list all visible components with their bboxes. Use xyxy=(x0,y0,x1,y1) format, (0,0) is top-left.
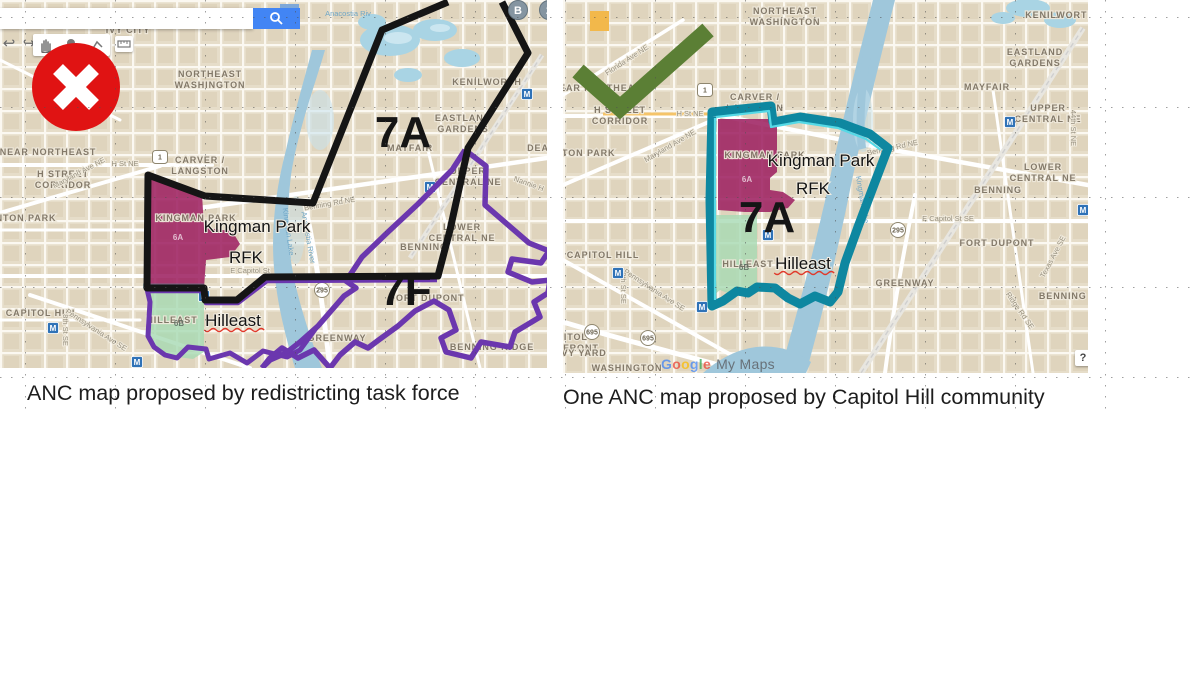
caption-community-map: One ANC map proposed by Capitol Hill com… xyxy=(563,385,1045,410)
search-input[interactable] xyxy=(0,8,253,29)
svg-text:2: 2 xyxy=(546,5,547,17)
route-shield: 1 xyxy=(153,151,168,164)
map-area-label: STANTON PARK xyxy=(563,148,615,158)
map-area-label: HILLEAST xyxy=(146,315,197,325)
svg-text:M: M xyxy=(1007,118,1014,127)
route-shield: 1 xyxy=(698,84,713,97)
community-map[interactable]: NORTHEASTWASHINGTONKENILWORTHEASTLANDGAR… xyxy=(563,0,1088,373)
street-label: 8th St SE xyxy=(61,314,70,346)
svg-text:M: M xyxy=(524,90,531,99)
svg-text:295: 295 xyxy=(892,228,904,235)
anc-badge: 6B xyxy=(739,263,749,272)
hand-icon[interactable] xyxy=(39,37,53,53)
annotation-label: Kingman Park xyxy=(768,151,875,170)
svg-text:M: M xyxy=(50,324,57,333)
annotation-label: Hilleast xyxy=(775,254,831,273)
map-area-label: NORTHEASTWASHINGTON xyxy=(750,6,821,27)
google-my-maps-watermark: GoogleMy Maps xyxy=(661,356,775,372)
orange-building xyxy=(590,11,609,31)
map-area-label: NAVY YARD xyxy=(563,348,607,358)
district-number-label: 7F xyxy=(380,266,431,315)
anc-badge: 6B xyxy=(174,319,184,328)
svg-text:1: 1 xyxy=(158,155,162,162)
svg-text:695: 695 xyxy=(586,330,598,337)
svg-text:M: M xyxy=(134,358,141,367)
map-area-label: NORTHEASTWASHINGTON xyxy=(175,69,246,90)
map-area-label: WASHINGTON xyxy=(592,363,663,373)
svg-text:M: M xyxy=(1080,206,1087,215)
map-toolbar: ↩ ↪ xyxy=(0,33,140,59)
ruler-icon[interactable] xyxy=(115,36,133,52)
street-label: E Capitol St SE xyxy=(922,214,974,223)
metro-station-icon: M xyxy=(1078,205,1089,216)
caption-taskforce-map: ANC map proposed by redistricting task f… xyxy=(27,381,460,406)
anc-badge: 6A xyxy=(742,175,752,184)
route-shield: 695 xyxy=(641,331,656,346)
map-area-label: NEAR NORTHEAST xyxy=(563,83,648,93)
community-map-canvas[interactable]: NORTHEASTWASHINGTONKENILWORTHEASTLANDGAR… xyxy=(563,0,1088,373)
help-button[interactable]: ? xyxy=(1075,350,1088,366)
annotation-label: Kingman Park xyxy=(204,217,311,236)
map-area-label: STANTON PARK xyxy=(0,213,56,223)
annotation-label: RFK xyxy=(229,248,264,267)
map-area-label: DEANWOOD xyxy=(527,143,547,153)
map-area-label: BENNING RIDGE xyxy=(1039,291,1088,301)
taskforce-map[interactable]: IVY CITYNORTHEASTWASHINGTONKENILWORTHEAS… xyxy=(0,0,547,368)
annotation-label: Hilleast xyxy=(205,311,261,330)
map-area-label: CARVER /LANGSTON xyxy=(171,155,229,176)
map-area-label: CAPITOL HILL xyxy=(567,250,639,260)
marker-icon[interactable] xyxy=(65,37,77,53)
map-area-label: H STREETCORRIDOR xyxy=(592,105,648,126)
metro-station-icon: M xyxy=(613,268,624,279)
annotation-label: RFK xyxy=(796,179,831,198)
anc-badge: 6A xyxy=(173,233,183,242)
my-maps-label: My Maps xyxy=(716,356,775,372)
draw-line-icon[interactable] xyxy=(90,37,104,53)
map-area-label: BENNING xyxy=(974,185,1022,195)
undo-icon[interactable]: ↩ xyxy=(0,34,18,52)
route-shield: 295 xyxy=(891,223,906,238)
route-shield: 295 xyxy=(315,283,330,298)
water-label: Anacostia Riv xyxy=(325,9,371,18)
svg-text:M: M xyxy=(699,303,706,312)
district-number-label: 7A xyxy=(375,108,431,157)
metro-station-icon: M xyxy=(48,323,59,334)
map-area-label: NEAR NORTHEAST xyxy=(0,147,96,157)
map-area-label: GREENWAY xyxy=(876,278,935,288)
draw-tools xyxy=(33,34,110,56)
svg-text:B: B xyxy=(514,5,522,17)
street-label: 44th St NE xyxy=(1069,110,1078,146)
slide-canvas: IVY CITYNORTHEASTWASHINGTONKENILWORTHEAS… xyxy=(0,0,1196,673)
metro-station-icon: M xyxy=(132,357,143,368)
svg-text:695: 695 xyxy=(642,336,654,343)
map-area-label: MAYFAIR xyxy=(964,82,1010,92)
svg-text:295: 295 xyxy=(316,288,328,295)
map-area-label: BENNING xyxy=(400,242,448,252)
search-icon xyxy=(253,8,300,29)
district-number-label: 7A xyxy=(739,193,795,242)
route-shield: 695 xyxy=(585,325,600,340)
metro-station-icon: M xyxy=(697,302,708,313)
search-button[interactable] xyxy=(253,8,300,29)
map-area-label: EASTLANDGARDENS xyxy=(1007,47,1063,68)
map-area-label: KENILWORTH xyxy=(1025,10,1088,20)
svg-text:M: M xyxy=(615,269,622,278)
metro-station-icon: M xyxy=(522,89,533,100)
svg-text:1: 1 xyxy=(703,88,707,95)
metro-station-icon: M xyxy=(1005,117,1016,128)
google-logo: Google xyxy=(661,356,711,372)
map-area-label: FORT DUPONT xyxy=(960,238,1035,248)
street-label: H St NE xyxy=(676,109,703,118)
street-label: H St NE xyxy=(111,159,138,168)
map-point-marker[interactable]: B xyxy=(509,1,528,20)
